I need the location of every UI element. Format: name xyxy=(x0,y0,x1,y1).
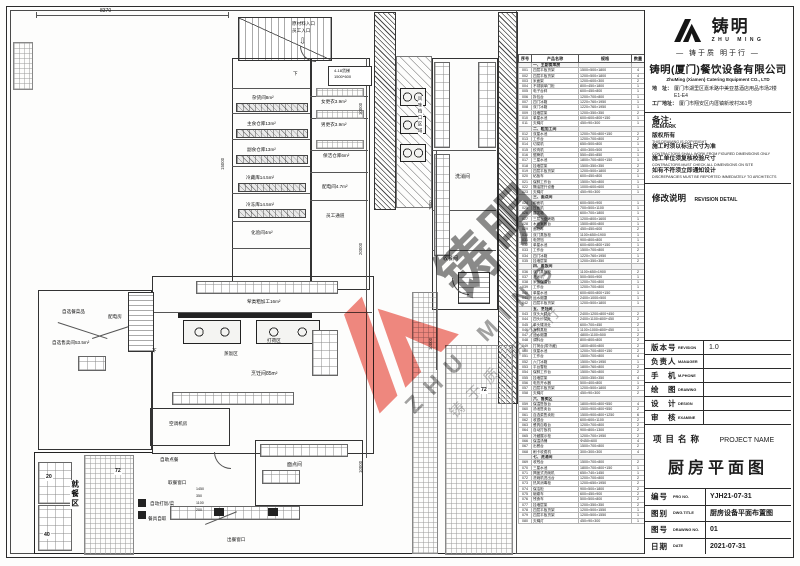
field-value xyxy=(703,383,791,396)
dimension-label: 350 xyxy=(196,494,202,498)
col-spec: 规格 xyxy=(579,55,632,63)
dining-table-cluster xyxy=(445,345,513,555)
dimension-tick xyxy=(228,12,229,18)
dining-wall xyxy=(34,452,35,554)
dimension-label: 1100 xyxy=(196,501,204,505)
room-label: 自选售卖间53.5m² xyxy=(52,340,89,345)
storage-rack xyxy=(238,183,306,192)
partition xyxy=(232,248,310,249)
field-row-phone: 手 机 M.PHONE xyxy=(645,369,791,383)
dining-long-table xyxy=(38,505,72,551)
field-value: 1.0 xyxy=(703,341,791,354)
title-block-header: 铸明 ZHU MING — 铸于质 明于行 — 铸明(厦门)餐饮设备有限公司 Z… xyxy=(645,10,791,113)
field-label-en: EXAMINE xyxy=(678,416,703,420)
partition xyxy=(232,166,310,167)
project-label-en: PROJECT NAME xyxy=(719,437,774,444)
title-block: 铸明 ZHU MING — 铸于质 明于行 — 铸明(厦门)餐饮设备有限公司 Z… xyxy=(644,10,791,554)
revision-label-zh: 修改说明 xyxy=(652,192,686,204)
doc-label-zh: 日期 xyxy=(651,541,673,552)
partition xyxy=(232,221,310,222)
doc-label-en: DATE xyxy=(673,544,705,548)
partition xyxy=(310,172,368,173)
pastry-equipment xyxy=(260,444,348,457)
zone-label: 荤类粗加工16m² xyxy=(247,299,280,304)
ac-room-wall xyxy=(150,408,230,446)
equipment-column xyxy=(478,62,496,148)
col-no: 序号 xyxy=(519,55,532,63)
cooking-range xyxy=(256,320,320,344)
storage-rack xyxy=(236,103,308,112)
field-value xyxy=(703,397,791,410)
field-row-drawing: 绘 图 DRAWING xyxy=(645,383,791,397)
factory-address-label: 工厂地址： xyxy=(652,101,677,108)
brand-tagline: — 铸于质 明于行 — xyxy=(645,48,791,58)
stair-direction: 下 xyxy=(152,348,157,353)
storage-rack xyxy=(236,129,308,138)
zone-label: 打荷区 xyxy=(267,338,281,343)
seat-count: 20 xyxy=(45,475,53,481)
booth-seating xyxy=(412,292,438,554)
stall-stove xyxy=(400,144,426,162)
room-label: 配电房 xyxy=(108,314,122,319)
field-label-zh: 审 核 xyxy=(651,412,678,423)
entrance-label: 原材料入口 xyxy=(292,21,315,26)
remark-label-zh: 备注: xyxy=(652,116,784,125)
equipment-rows: 一、主副食库房001四层平板货架1500×500×18004002四层平板货架1… xyxy=(519,63,645,524)
partition xyxy=(432,150,496,151)
dimension-label: 200 xyxy=(196,508,202,512)
doc-label-zh: 图别 xyxy=(651,508,673,519)
dining-table-cluster xyxy=(84,455,134,555)
field-row-manager: 负责人 MANAGER xyxy=(645,355,791,369)
doc-row-date: 日期 DATE 2021-07-31 xyxy=(645,539,791,555)
pastry-equipment xyxy=(262,470,300,484)
room-label: 化验间4m² xyxy=(251,230,273,235)
zhuming-logo-icon xyxy=(672,17,706,44)
ramp-structure xyxy=(13,42,33,90)
field-value xyxy=(703,411,791,424)
project-name: 厨房平面图 xyxy=(653,454,783,478)
brand-name-en: ZHU MING xyxy=(712,37,765,43)
partition xyxy=(232,193,310,194)
room-label: 配电间4.7m² xyxy=(322,184,348,189)
vending-machine xyxy=(138,499,146,507)
dimension-label: 10000 xyxy=(428,338,433,350)
partition xyxy=(310,200,368,201)
field-label-zh: 设 计 xyxy=(651,398,678,409)
elevator-label: 1500*600 xyxy=(334,75,351,80)
field-label-zh: 版本号 xyxy=(651,342,678,353)
entrance-label: 员工入口 xyxy=(292,28,310,33)
vending-machine xyxy=(138,511,146,519)
project-label-zh: 项目名称 xyxy=(653,434,703,444)
dimension-label: 15000 xyxy=(220,158,225,170)
doc-value: 厨房设备平面布置图 xyxy=(705,506,791,522)
dimension-line xyxy=(36,15,228,16)
address-label: 地 址： xyxy=(652,86,672,99)
dimension-label: 10000 xyxy=(358,103,363,115)
hatch-band xyxy=(374,12,396,210)
project-name-section: 项目名称 PROJECT NAME 厨房平面图 xyxy=(645,425,791,489)
equipment-schedule: 序号 产品名称 规格 数量 一、主副食库房001四层平板货架1500×500×1… xyxy=(518,54,644,524)
revision-section: 修改说明 REVISION DETAIL xyxy=(645,184,791,341)
room-label: 洗消间 xyxy=(455,175,470,181)
partition xyxy=(232,88,310,89)
partition xyxy=(232,139,310,140)
remark-label-en: REMARK xyxy=(652,124,784,131)
doc-label-en: PRO NO. xyxy=(673,495,705,499)
counter-unit xyxy=(268,508,278,516)
stair-top xyxy=(238,17,332,61)
zone-label: 风味档口区域 xyxy=(418,96,423,134)
window-label: 出餐窗口 xyxy=(227,537,245,542)
field-value xyxy=(703,355,791,368)
storage-rack xyxy=(236,155,308,164)
remark-item-zh: 版权所有 xyxy=(652,133,784,140)
dimension-line xyxy=(436,150,437,370)
company-name: 铸明(厦门)餐饮设备有限公司 xyxy=(645,61,791,76)
doc-value: YJH21-07-31 xyxy=(705,489,791,505)
room-label: 主食仓库13m² xyxy=(247,121,276,126)
dimension-label: 1450 xyxy=(196,487,204,491)
dimension-label: 20000 xyxy=(358,243,363,255)
field-label-en: DRAWING xyxy=(678,388,703,392)
room-label: 保洁仓库6m² xyxy=(323,153,349,158)
doc-label-en: DRAWING NO. xyxy=(673,528,705,532)
remark-item-zh: 如有不符须立即通知设计 xyxy=(652,168,784,175)
table-header-row: 序号 产品名称 规格 数量 xyxy=(519,55,645,63)
room-label: 副食仓库13m² xyxy=(247,147,276,152)
room-label: 烹饪间85m² xyxy=(251,372,277,378)
doc-label-en: DWG.TITLE xyxy=(673,511,705,515)
doc-value: 2021-07-31 xyxy=(705,539,791,555)
seat-count: 40 xyxy=(43,533,51,539)
exhaust-hood xyxy=(178,313,312,318)
stair-direction: 下 xyxy=(293,71,298,76)
serving-counter xyxy=(170,506,300,520)
elevator-label: 4-18货梯 xyxy=(334,69,350,74)
cooking-range xyxy=(183,320,241,344)
remark-item-zh: 施工时须以标注尺寸为准 xyxy=(652,144,784,151)
room-label: 收餐间 xyxy=(443,257,458,263)
dining-long-table xyxy=(38,462,72,504)
seat-count: 72 xyxy=(114,469,122,475)
remark-section: 备注: REMARK 版权所有THIS DRAWING IS COPYRIGHT… xyxy=(645,113,791,185)
dimension-tick xyxy=(36,12,37,18)
company-name-en: ZhuMing (Xiamen) Catering Equipment CO.,… xyxy=(645,77,791,82)
field-label-zh: 手 机 xyxy=(651,370,678,381)
steam-cabinet xyxy=(312,330,338,376)
equipment-table: 序号 产品名称 规格 数量 一、主副食库房001四层平板货架1500×500×1… xyxy=(518,54,645,524)
field-label-en: MANAGER xyxy=(678,360,703,364)
doc-row-sheet: 图号 DRAWING NO. 01 xyxy=(645,522,791,539)
window-label: 取餐窗口 xyxy=(168,480,186,485)
field-label-en: REVISION xyxy=(678,346,703,350)
factory-address-value: 厦门市翔安区内厝镇新垵村361号 xyxy=(679,101,752,108)
stair-center xyxy=(128,292,154,352)
field-label-zh: 负责人 xyxy=(651,356,678,367)
field-label-en: M.PHONE xyxy=(678,374,703,378)
doc-row-category: 图别 DWG.TITLE 厨房设备平面布置图 xyxy=(645,506,791,523)
remark-item-zh: 施工单位须复核校验尺寸 xyxy=(652,156,784,163)
field-row-revision: 版本号 REVISION 1.0 xyxy=(645,341,791,355)
worktable-row xyxy=(196,281,338,294)
zone-label: 自动打饭/菜 xyxy=(150,501,174,506)
room-label: 员工通道 xyxy=(326,213,344,218)
room-label: 冷藏库14.5m² xyxy=(246,175,274,180)
dimension-label: 10000 xyxy=(358,461,363,473)
room-label: 空调机房 xyxy=(169,421,187,426)
room-label: 男更衣3.9m² xyxy=(321,122,347,127)
locker-row xyxy=(316,88,364,97)
counter-unit xyxy=(214,508,224,516)
field-label-zh: 绘 图 xyxy=(651,384,678,395)
locker-row xyxy=(316,140,364,149)
revision-label-en: REVISION DETAIL xyxy=(694,197,737,203)
address-value: 厦门市湖里区嘉禾路中美亚基酒店用品市场2楼E1-E4 xyxy=(674,86,784,99)
doc-value: 01 xyxy=(705,522,791,538)
dimension-label: 7000 xyxy=(428,200,433,210)
partition xyxy=(310,150,368,151)
brand-name-zh: 铸明 xyxy=(712,18,765,35)
doc-label-zh: 图号 xyxy=(651,524,673,535)
storage-wing-wall xyxy=(232,58,312,290)
doc-row-number: 编号 PRO NO. YJH21-07-31 xyxy=(645,489,791,506)
field-row-examine: 审 核 EXAMINE xyxy=(645,411,791,425)
equipment-column xyxy=(434,62,450,148)
partition xyxy=(232,113,310,114)
zone-label: 蒸饭区 xyxy=(224,351,238,356)
worktable-row xyxy=(172,392,294,405)
counter xyxy=(78,356,106,371)
zone-label: 自助点餐 xyxy=(160,457,178,462)
col-qty: 数量 xyxy=(632,55,645,63)
doc-label-zh: 编号 xyxy=(651,491,673,502)
storage-rack xyxy=(238,209,306,218)
table-row: 080灭蝇灯450×90×3001 xyxy=(519,518,645,523)
entrance-arrow-icon: ⇩ xyxy=(299,36,307,46)
room-label: 女更衣3.9m² xyxy=(321,99,347,104)
zone-label: 自选餐菜品 xyxy=(62,309,85,314)
field-label-en: DESIGN xyxy=(678,402,703,406)
room-label: 冷冻库14.5m² xyxy=(246,202,274,207)
dimension-label: 8370 xyxy=(100,9,111,15)
field-row-design: 设 计 DESIGN xyxy=(645,397,791,411)
col-name: 产品名称 xyxy=(532,55,579,63)
zone-label: 就餐区 xyxy=(70,480,79,509)
dimension-line xyxy=(366,58,367,458)
locker-row xyxy=(316,110,364,119)
room-label: 面点间 xyxy=(287,463,302,469)
field-value xyxy=(703,369,791,382)
room-label: 杂货间8m² xyxy=(252,95,274,100)
dining-wall xyxy=(35,452,152,453)
zone-label: 餐具自取 xyxy=(148,516,166,521)
remark-item-en: DISCREPANCIES MUST BE REPORTED IMMEDIATE… xyxy=(652,175,784,179)
seat-count: 72 xyxy=(480,388,488,394)
